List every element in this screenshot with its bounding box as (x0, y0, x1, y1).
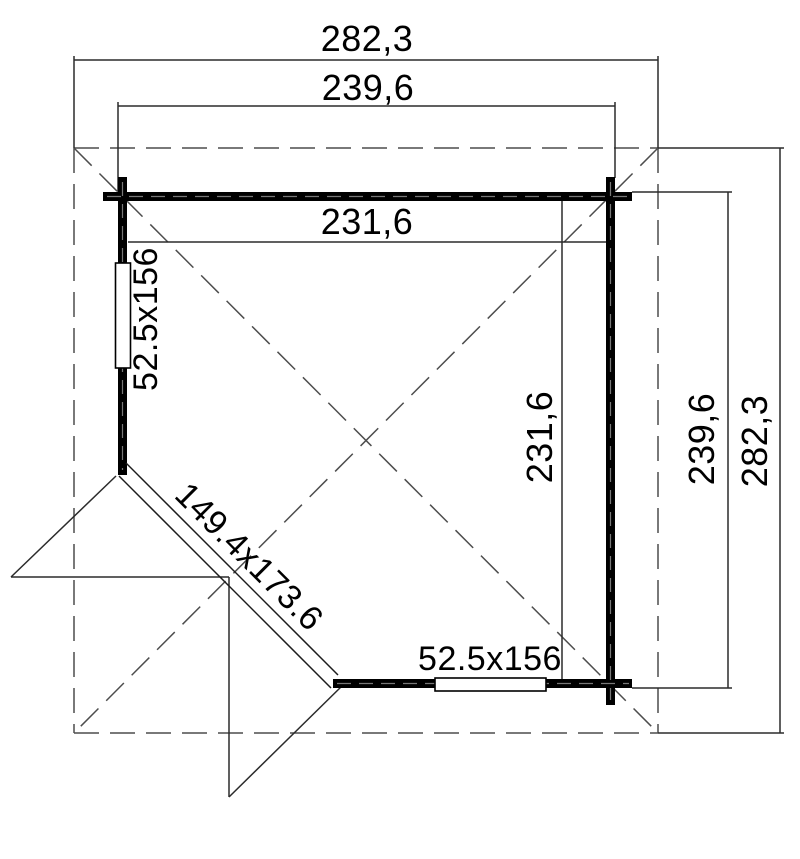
floor-plan-canvas: 282,3 239,6 231,6 231,6 239,6 282,3 52.5… (0, 0, 800, 859)
dim-text-wall-depth: 239,6 (684, 393, 720, 486)
window-bottom-size-text: 52.5x156 (418, 642, 562, 676)
door-swing-bottom-diagonal (229, 684, 344, 797)
floor-plan-drawing (0, 0, 800, 859)
window-left-size-text: 52.5x156 (129, 247, 163, 391)
door-panel-line-outer (126, 463, 338, 675)
door-swing-left-diagonal (11, 476, 116, 577)
dim-text-roof-depth: 282,3 (737, 395, 773, 488)
window-bottom (435, 678, 546, 691)
dim-text-wall-width: 239,6 (322, 70, 415, 106)
dim-text-inner-depth: 231,6 (522, 391, 558, 484)
dim-text-inner-width: 231,6 (321, 204, 414, 240)
dim-text-roof-width: 282,3 (321, 21, 414, 57)
